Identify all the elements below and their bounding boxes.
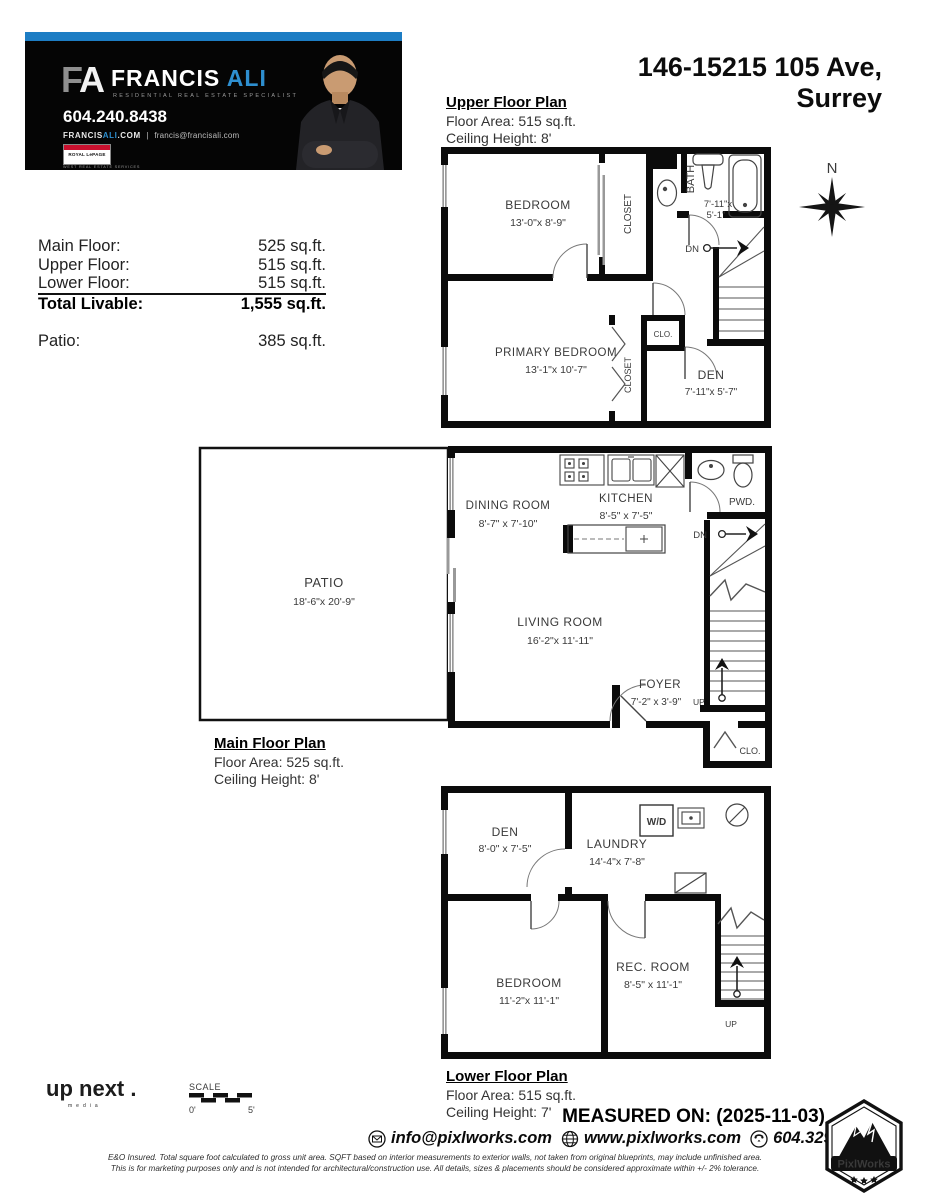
pwd-sink	[698, 461, 724, 480]
lower-bedroom-label: BEDROOM	[496, 976, 562, 990]
upper-floor-label: Upper Floor Plan Floor Area: 515 sq.ft. …	[446, 94, 576, 147]
lower-floor-plan: DEN 8'-0" x 7'-5" LAUNDRY 14'-4"x 7'-8" …	[441, 786, 773, 1062]
summary-row-upper: Upper Floor:515 sq.ft.	[38, 256, 326, 275]
kitchen-dims: 8'-5" x 7'-5"	[600, 510, 653, 522]
bath-sink	[693, 154, 723, 189]
main-floor-ceiling: Ceiling Height: 8'	[214, 771, 344, 788]
lower-den-label: DEN	[492, 825, 519, 839]
laundry-dims: 14'-4"x 7'-8"	[589, 856, 645, 868]
royal-lepage-label: ROYAL LePAGE	[64, 152, 110, 157]
stairs-down-arrow	[704, 240, 749, 256]
bath-dims1: 7'-11"x	[704, 199, 732, 210]
royal-lepage-logo: ROYAL LePAGE	[63, 144, 111, 165]
lower-up-label: UP	[725, 1019, 737, 1029]
contact-website: www.pixlworks.com	[561, 1129, 741, 1148]
main-floor-label: Main Floor Plan Floor Area: 525 sq.ft. C…	[214, 735, 344, 788]
agent-banner: FA FRANCIS ALI RESIDENTIAL REAL ESTATE S…	[25, 32, 402, 170]
main-floor-area: Floor Area: 525 sq.ft.	[214, 754, 344, 771]
upper-floor-ceiling: Ceiling Height: 8'	[446, 130, 576, 147]
agent-first-name: FRANCIS	[111, 65, 220, 91]
banner-accent-stripe	[25, 32, 402, 41]
summary-value: 515 sq.ft.	[258, 256, 326, 275]
primary-bedroom-dims: 13'-1"x 10'-7"	[525, 364, 587, 376]
disclaimer-line1: E&O Insured. Total square foot calculate…	[55, 1153, 815, 1164]
upper-floor-title: Upper Floor Plan	[446, 94, 576, 111]
summary-label: Lower Floor:	[38, 274, 130, 293]
royal-lepage-red-bar	[64, 145, 110, 150]
scale-end: 5'	[248, 1105, 255, 1115]
lower-up-arrow	[730, 956, 744, 997]
patio-dims: 18'-6"x 20'-9"	[293, 596, 355, 608]
main-up-arrow	[715, 658, 729, 701]
address-line1: 146-15215 105 Ave,	[470, 52, 882, 83]
pwd-toilet	[733, 455, 753, 487]
disclaimer-line2: This is for marketing purposes only and …	[55, 1164, 815, 1175]
agent-last-name: ALI	[227, 65, 267, 91]
summary-row-patio: Patio:385 sq.ft.	[38, 332, 326, 351]
upper-bedroom-dims: 13'-0"x 8'-9"	[510, 217, 566, 229]
upper-den-label: DEN	[698, 368, 725, 382]
laundry-sink	[678, 808, 704, 828]
kitchen-sink	[608, 455, 654, 485]
main-dn-arrow	[719, 526, 758, 542]
agent-tagline: RESIDENTIAL REAL ESTATE SPECIALIST	[113, 93, 298, 99]
upper-bedroom-label: BEDROOM	[505, 198, 571, 212]
upper-stairs	[719, 227, 764, 331]
agent-logo-f: F	[61, 59, 79, 100]
wd-label: W/D	[647, 817, 666, 828]
primary-closet-label: CLOSET	[623, 356, 633, 393]
bath-label: BATH	[685, 165, 697, 194]
summary-row-main: Main Floor:525 sq.ft.	[38, 237, 326, 256]
main-dn-label: DN	[693, 530, 707, 541]
website-part1: FRANCIS	[63, 131, 103, 140]
lower-walls	[441, 786, 771, 1059]
upnext-media-logo: up next . media	[46, 1076, 137, 1109]
area-summary: Main Floor:525 sq.ft. Upper Floor:515 sq…	[38, 237, 326, 351]
closet-slider	[598, 165, 601, 255]
patio-label: PATIO	[304, 575, 344, 590]
foyer-label: FOYER	[639, 679, 681, 691]
upper-toilet	[658, 180, 677, 206]
agent-photo	[274, 46, 402, 170]
summary-patio-label: Patio:	[38, 332, 80, 351]
website-part2: ALI	[103, 131, 118, 140]
scale-start: 0'	[189, 1105, 196, 1115]
lower-stairs	[718, 908, 764, 999]
pixlworks-label: PixlWorks	[838, 1159, 891, 1171]
rec-room-dims: 8'-5" x 11'-1"	[624, 979, 682, 991]
main-floor-title: Main Floor Plan	[214, 735, 344, 752]
website-separator: |	[146, 131, 148, 140]
water-tank	[726, 804, 748, 826]
agent-name: FRANCIS ALI	[111, 65, 267, 92]
summary-row-lower: Lower Floor:515 sq.ft.	[38, 274, 326, 293]
summary-total-label: Total Livable:	[38, 295, 143, 314]
measured-on: MEASURED ON: (2025-11-03)	[555, 1106, 825, 1128]
agent-phone: 604.240.8438	[63, 107, 167, 127]
brokerage-subtitle: WEST REAL ESTATE SERVICES	[63, 165, 140, 169]
pixlworks-logo: PixlWorks	[818, 1098, 910, 1196]
agent-logo: FA	[61, 59, 103, 101]
primary-bedroom-label: PRIMARY BEDROOM	[495, 347, 617, 359]
compass-rose: N	[797, 158, 867, 240]
dining-room-dims: 8'-7" x 7'-10"	[479, 518, 538, 530]
living-room-dims: 16'-2"x 11'-11"	[527, 635, 593, 647]
scale-label: SCALE	[189, 1082, 221, 1092]
upper-dn-label: DN	[685, 244, 699, 255]
agent-email: francis@francisali.com	[154, 131, 239, 140]
floor-plan-sheet: FA FRANCIS ALI RESIDENTIAL REAL ESTATE S…	[0, 0, 927, 1200]
upnext-word1: up	[46, 1076, 73, 1101]
main-clo-label: CLO.	[739, 746, 760, 756]
contact-row: info@pixlworks.com www.pixlworks.com 604…	[368, 1129, 874, 1148]
agent-website: FRANCISALI.COM | francis@francisali.com	[63, 131, 239, 140]
main-floor-plan: PATIO 18'-6"x 20'-9" DINING ROOM 8'-7" x…	[198, 446, 776, 772]
pwd-label: PWD.	[729, 497, 755, 508]
bath-dims2: 5'-1"	[707, 210, 726, 221]
upper-floor-plan: BEDROOM 13'-0"x 8'-9" CLOSET BATH 7'-11"…	[441, 147, 773, 430]
contact-email: info@pixlworks.com	[368, 1129, 552, 1148]
contact-email-text: info@pixlworks.com	[391, 1129, 552, 1148]
summary-label: Main Floor:	[38, 237, 121, 256]
summary-total-value: 1,555 sq.ft.	[241, 295, 326, 314]
main-up-label: UP	[693, 697, 705, 707]
banner-body: FA FRANCIS ALI RESIDENTIAL REAL ESTATE S…	[25, 41, 402, 170]
envelope-icon	[368, 1130, 386, 1148]
website-part3: .COM	[117, 131, 140, 140]
laundry-label: LAUNDRY	[587, 837, 648, 851]
rec-room-label: REC. ROOM	[616, 960, 690, 974]
lower-floor-title: Lower Floor Plan	[446, 1068, 576, 1085]
stove	[560, 455, 604, 485]
summary-label: Upper Floor:	[38, 256, 130, 275]
summary-row-total: Total Livable:1,555 sq.ft.	[38, 293, 326, 314]
scale-segments	[189, 1093, 252, 1103]
upper-closet-label: CLOSET	[623, 194, 634, 234]
foyer-dims: 7'-2" x 3'-9"	[631, 697, 682, 708]
fridge	[656, 455, 684, 487]
summary-value: 515 sq.ft.	[258, 274, 326, 293]
summary-patio-value: 385 sq.ft.	[258, 332, 326, 351]
living-room-label: LIVING ROOM	[517, 615, 603, 629]
lower-den-dims: 8'-0" x 7'-5"	[479, 843, 532, 855]
upper-den-dims: 7'-11"x 5'-7"	[685, 387, 738, 398]
scale-bar: SCALE 0' 5'	[186, 1080, 276, 1120]
kitchen-label: KITCHEN	[599, 493, 653, 505]
upper-floor-area: Floor Area: 515 sq.ft.	[446, 113, 576, 130]
upnext-media-sub: media	[68, 1103, 137, 1109]
kitchen-island	[568, 525, 665, 553]
upnext-word2: next	[79, 1076, 124, 1101]
bathtub	[729, 155, 761, 217]
summary-value: 525 sq.ft.	[258, 237, 326, 256]
contact-website-text: www.pixlworks.com	[584, 1129, 741, 1148]
lower-bedroom-dims: 11'-2"x 11'-1"	[499, 995, 559, 1007]
agent-logo-a: A	[79, 59, 103, 100]
closet-slider	[603, 175, 606, 265]
disclaimer: E&O Insured. Total square foot calculate…	[55, 1153, 815, 1174]
dining-room-label: DINING ROOM	[466, 500, 551, 512]
globe-icon	[561, 1130, 579, 1148]
upnext-dot: .	[124, 1076, 136, 1101]
phone-icon	[750, 1130, 768, 1148]
compass-north-label: N	[827, 160, 838, 177]
electrical-panel	[675, 873, 706, 893]
lower-floor-area: Floor Area: 515 sq.ft.	[446, 1087, 576, 1104]
upper-clo-label: CLO.	[654, 330, 673, 339]
